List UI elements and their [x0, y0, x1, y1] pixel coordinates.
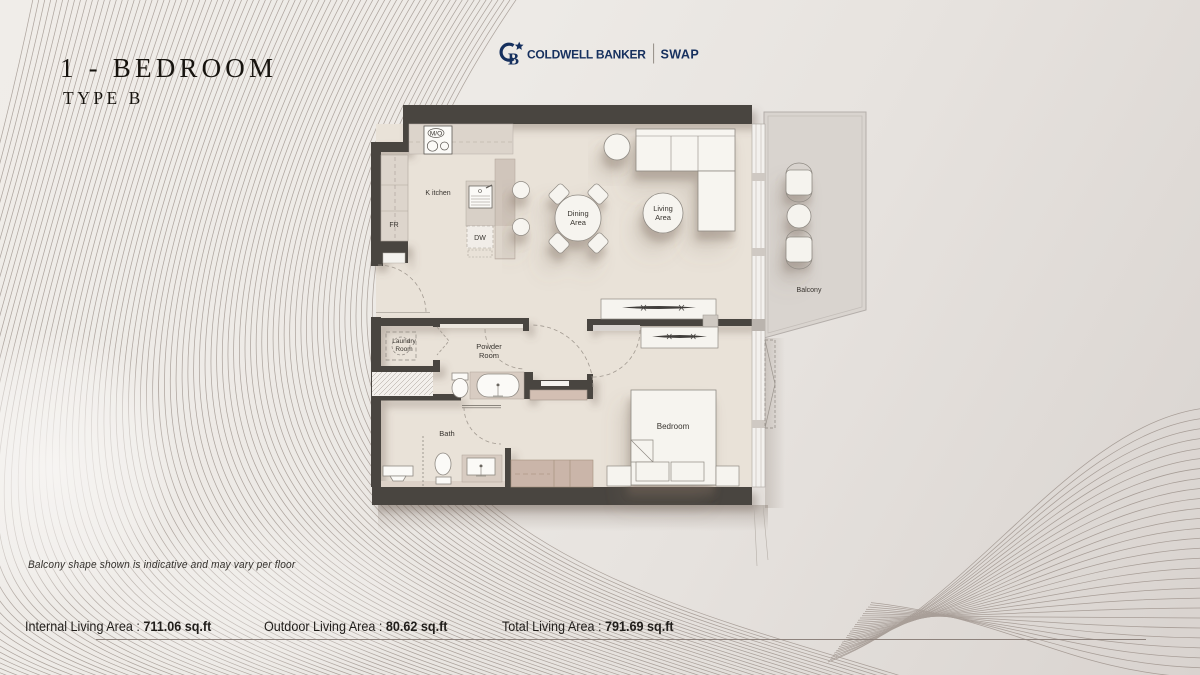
svg-text:Room: Room [395, 346, 412, 353]
svg-text:B: B [508, 50, 519, 68]
svg-text:Bedroom: Bedroom [657, 422, 690, 431]
svg-text:Living: Living [653, 204, 673, 213]
svg-text:Laundry: Laundry [392, 338, 416, 345]
svg-text:Powder: Powder [476, 342, 502, 351]
svg-text:Dining: Dining [567, 209, 588, 218]
svg-text:SWAP: SWAP [661, 47, 700, 61]
svg-text:Area: Area [570, 218, 587, 227]
svg-text:FR: FR [389, 222, 398, 229]
svg-text:K itchen: K itchen [425, 190, 450, 197]
svg-text:Area: Area [655, 213, 672, 222]
svg-text:Balcony: Balcony [797, 287, 822, 294]
svg-text:Bath: Bath [439, 429, 454, 438]
svg-text:COLDWELL BANKER: COLDWELL BANKER [527, 47, 646, 61]
svg-text:M/O: M/O [430, 131, 442, 138]
svg-text:Room: Room [479, 351, 499, 360]
svg-text:DW: DW [474, 235, 486, 242]
